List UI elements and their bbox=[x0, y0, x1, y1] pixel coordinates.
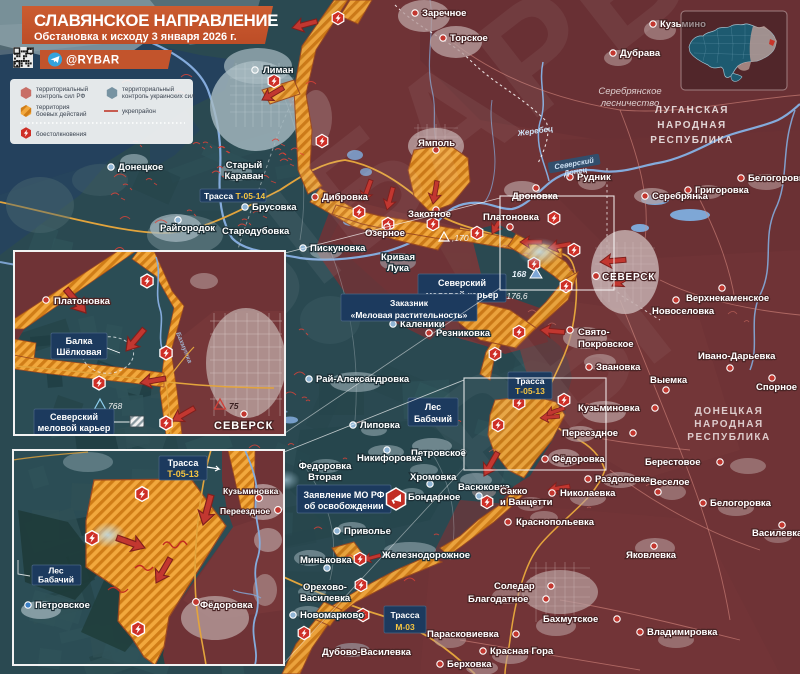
svg-text:Бахмутское: Бахмутское bbox=[543, 614, 598, 625]
svg-text:75: 75 bbox=[229, 401, 239, 411]
svg-text:Покровское: Покровское bbox=[578, 339, 634, 350]
svg-text:Райгородок: Райгородок bbox=[160, 223, 215, 234]
svg-text:Берховка: Берховка bbox=[447, 659, 492, 670]
svg-text:«Меловая растительность»: «Меловая растительность» bbox=[351, 310, 468, 320]
svg-text:Фёдоровка: Фёдоровка bbox=[552, 454, 605, 465]
svg-text:Старый: Старый bbox=[226, 160, 263, 171]
svg-text:Григоровка: Григоровка bbox=[695, 185, 750, 196]
svg-text:Петровское: Петровское bbox=[35, 600, 90, 611]
svg-text:Т-05-13: Т-05-13 bbox=[515, 386, 545, 396]
svg-text:территориальный: территориальный bbox=[122, 85, 175, 93]
svg-text:Парасковиевка: Парасковиевка bbox=[427, 629, 499, 640]
svg-text:Красная Гора: Красная Гора bbox=[490, 646, 554, 657]
svg-text:Краснопольевка: Краснопольевка bbox=[516, 517, 595, 528]
svg-text:Верхнекаменское: Верхнекаменское bbox=[686, 293, 769, 304]
svg-text:Белогоровка: Белогоровка bbox=[710, 498, 772, 509]
svg-text:ДОНЕЦКАЯ: ДОНЕЦКАЯ bbox=[695, 406, 764, 417]
svg-text:Фёдоровка: Фёдоровка bbox=[200, 600, 253, 611]
svg-text:НАРОДНАЯ: НАРОДНАЯ bbox=[694, 419, 763, 430]
svg-text:Звановка: Звановка bbox=[596, 362, 641, 373]
svg-text:СЕВЕРСК: СЕВЕРСК bbox=[214, 420, 273, 432]
svg-text:Переездное: Переездное bbox=[562, 428, 618, 439]
svg-text:Ивано-Дарьевка: Ивано-Дарьевка bbox=[698, 351, 776, 362]
svg-text:Торское: Торское bbox=[450, 33, 488, 44]
svg-text:Дибровка: Дибровка bbox=[322, 192, 369, 203]
svg-text:Бабачий: Бабачий bbox=[38, 575, 74, 585]
svg-text:Кривая: Кривая bbox=[381, 252, 415, 263]
svg-text:Т-05-13: Т-05-13 bbox=[167, 469, 199, 479]
svg-text:Николаевка: Николаевка bbox=[560, 488, 616, 499]
svg-text:Ямполь: Ямполь bbox=[418, 138, 455, 149]
svg-text:Благодатное: Благодатное bbox=[468, 594, 528, 605]
svg-text:Берестовое: Берестовое bbox=[645, 457, 701, 468]
svg-text:Лука: Лука bbox=[387, 263, 410, 274]
svg-text:СЕВЕРСК: СЕВЕРСК bbox=[602, 272, 655, 283]
svg-text:Трасса: Трасса bbox=[168, 458, 200, 468]
svg-text:Кузьминовка: Кузьминовка bbox=[223, 486, 279, 496]
svg-text:Серебрянское: Серебрянское bbox=[598, 86, 661, 97]
svg-text:Яковлевка: Яковлевка bbox=[626, 550, 677, 561]
svg-text:Приволье: Приволье bbox=[344, 526, 391, 537]
svg-text:НАРОДНАЯ: НАРОДНАЯ bbox=[657, 120, 726, 131]
svg-text:Брусовка: Брусовка bbox=[252, 202, 297, 213]
svg-text:Липовка: Липовка bbox=[360, 420, 401, 431]
svg-text:Караван: Караван bbox=[224, 171, 263, 182]
svg-text:Стародубовка: Стародубовка bbox=[222, 226, 290, 237]
svg-text:168: 168 bbox=[512, 269, 526, 279]
svg-text:укрепрайон: укрепрайон bbox=[122, 107, 156, 115]
svg-text:Бабачий: Бабачий bbox=[414, 414, 452, 424]
svg-text:,176,6: ,176,6 bbox=[504, 291, 528, 301]
svg-text:Выемка: Выемка bbox=[650, 375, 688, 386]
svg-text:Василевка: Василевка bbox=[752, 528, 800, 539]
svg-text:Трасса Т-05-14: Трасса Т-05-14 bbox=[204, 191, 265, 201]
svg-text:Железнодорожное: Железнодорожное bbox=[381, 550, 470, 561]
svg-text:Резниковка: Резниковка bbox=[436, 328, 491, 339]
svg-text:Миньковка: Миньковка bbox=[300, 555, 352, 566]
svg-text:Кузьминовка: Кузьминовка bbox=[578, 403, 641, 414]
svg-text:и Ванцетти: и Ванцетти bbox=[500, 497, 553, 508]
svg-text:Заречное: Заречное bbox=[422, 8, 466, 19]
svg-text:боевых действий: боевых действий bbox=[36, 110, 87, 118]
svg-text:боестолкновения: боестолкновения bbox=[36, 130, 87, 138]
svg-text:Переездное: Переездное bbox=[220, 506, 270, 516]
svg-text:Новоселовка: Новоселовка bbox=[652, 306, 715, 317]
svg-text:Федоровка: Федоровка bbox=[299, 461, 352, 472]
svg-text:Лиман: Лиман bbox=[263, 65, 294, 76]
svg-text:Спорное: Спорное bbox=[756, 382, 797, 393]
svg-text:@RYBAR: @RYBAR bbox=[66, 55, 120, 67]
svg-text:Белогоровка: Белогоровка bbox=[748, 173, 800, 184]
svg-text:М-03: М-03 bbox=[395, 622, 415, 632]
svg-text:Рай-Александровка: Рай-Александровка bbox=[316, 374, 410, 385]
svg-text:территория: территория bbox=[36, 104, 70, 111]
svg-text:Дубово-Василевка: Дубово-Василевка bbox=[322, 647, 412, 658]
svg-text:Балка: Балка bbox=[66, 336, 94, 346]
svg-text:Закотное: Закотное bbox=[408, 209, 451, 220]
svg-text:Свято-: Свято- bbox=[578, 327, 610, 338]
svg-text:Бондарное: Бондарное bbox=[408, 492, 460, 503]
svg-text:об освобождении: об освобождении bbox=[304, 501, 383, 511]
svg-text:Новомарково: Новомарково bbox=[300, 610, 364, 621]
svg-text:территориальный: территориальный bbox=[36, 85, 89, 93]
svg-text:РЕСПУБЛИКА: РЕСПУБЛИКА bbox=[650, 135, 733, 146]
svg-text:Заказник: Заказник bbox=[390, 298, 429, 308]
svg-text:контроль украинских сил: контроль украинских сил bbox=[122, 93, 195, 100]
svg-text:Дубрава: Дубрава bbox=[620, 48, 661, 59]
svg-text:Орехово-: Орехово- bbox=[303, 582, 347, 593]
svg-text:Лес: Лес bbox=[425, 402, 441, 412]
svg-text:Северский: Северский bbox=[438, 278, 486, 288]
svg-text:Хромовка: Хромовка bbox=[410, 472, 457, 483]
svg-text:лесничество: лесничество bbox=[600, 98, 660, 109]
svg-text:,170: ,170 bbox=[452, 233, 469, 243]
svg-text:СЛАВЯНСКОЕ НАПРАВЛЕНИЕ: СЛАВЯНСКОЕ НАПРАВЛЕНИЕ bbox=[34, 11, 278, 30]
svg-text:Раздоловка: Раздоловка bbox=[595, 474, 651, 485]
svg-text:Платоновка: Платоновка bbox=[54, 296, 111, 307]
svg-text:Донецкое: Донецкое bbox=[118, 162, 163, 173]
svg-text:Шёлковая: Шёлковая bbox=[56, 347, 101, 357]
svg-text:Сакко: Сакко bbox=[500, 486, 528, 497]
svg-text:ЛУГАНСКАЯ: ЛУГАНСКАЯ bbox=[655, 105, 729, 116]
svg-text:Веселое: Веселое bbox=[650, 477, 690, 488]
svg-text:Трасса: Трасса bbox=[390, 610, 419, 620]
svg-text:Обстановка к исходу 3 января 2: Обстановка к исходу 3 января 2026 г. bbox=[34, 31, 237, 43]
svg-text:Заявление МО РФ: Заявление МО РФ bbox=[304, 490, 385, 500]
svg-text:Озерное: Озерное bbox=[365, 228, 405, 239]
svg-text:меловой карьер: меловой карьер bbox=[38, 423, 111, 433]
svg-text:РЕСПУБЛИКА: РЕСПУБЛИКА bbox=[687, 432, 770, 443]
svg-text:Вторая: Вторая bbox=[308, 472, 342, 483]
svg-text:Владимировка: Владимировка bbox=[647, 627, 718, 638]
svg-text:контроль сил РФ: контроль сил РФ bbox=[36, 93, 85, 100]
svg-text:Соледар: Соледар bbox=[494, 581, 535, 592]
svg-text:Никифоровка: Никифоровка bbox=[357, 453, 422, 464]
svg-text:Платоновка: Платоновка bbox=[483, 212, 540, 223]
svg-text:Северский: Северский bbox=[50, 412, 98, 422]
